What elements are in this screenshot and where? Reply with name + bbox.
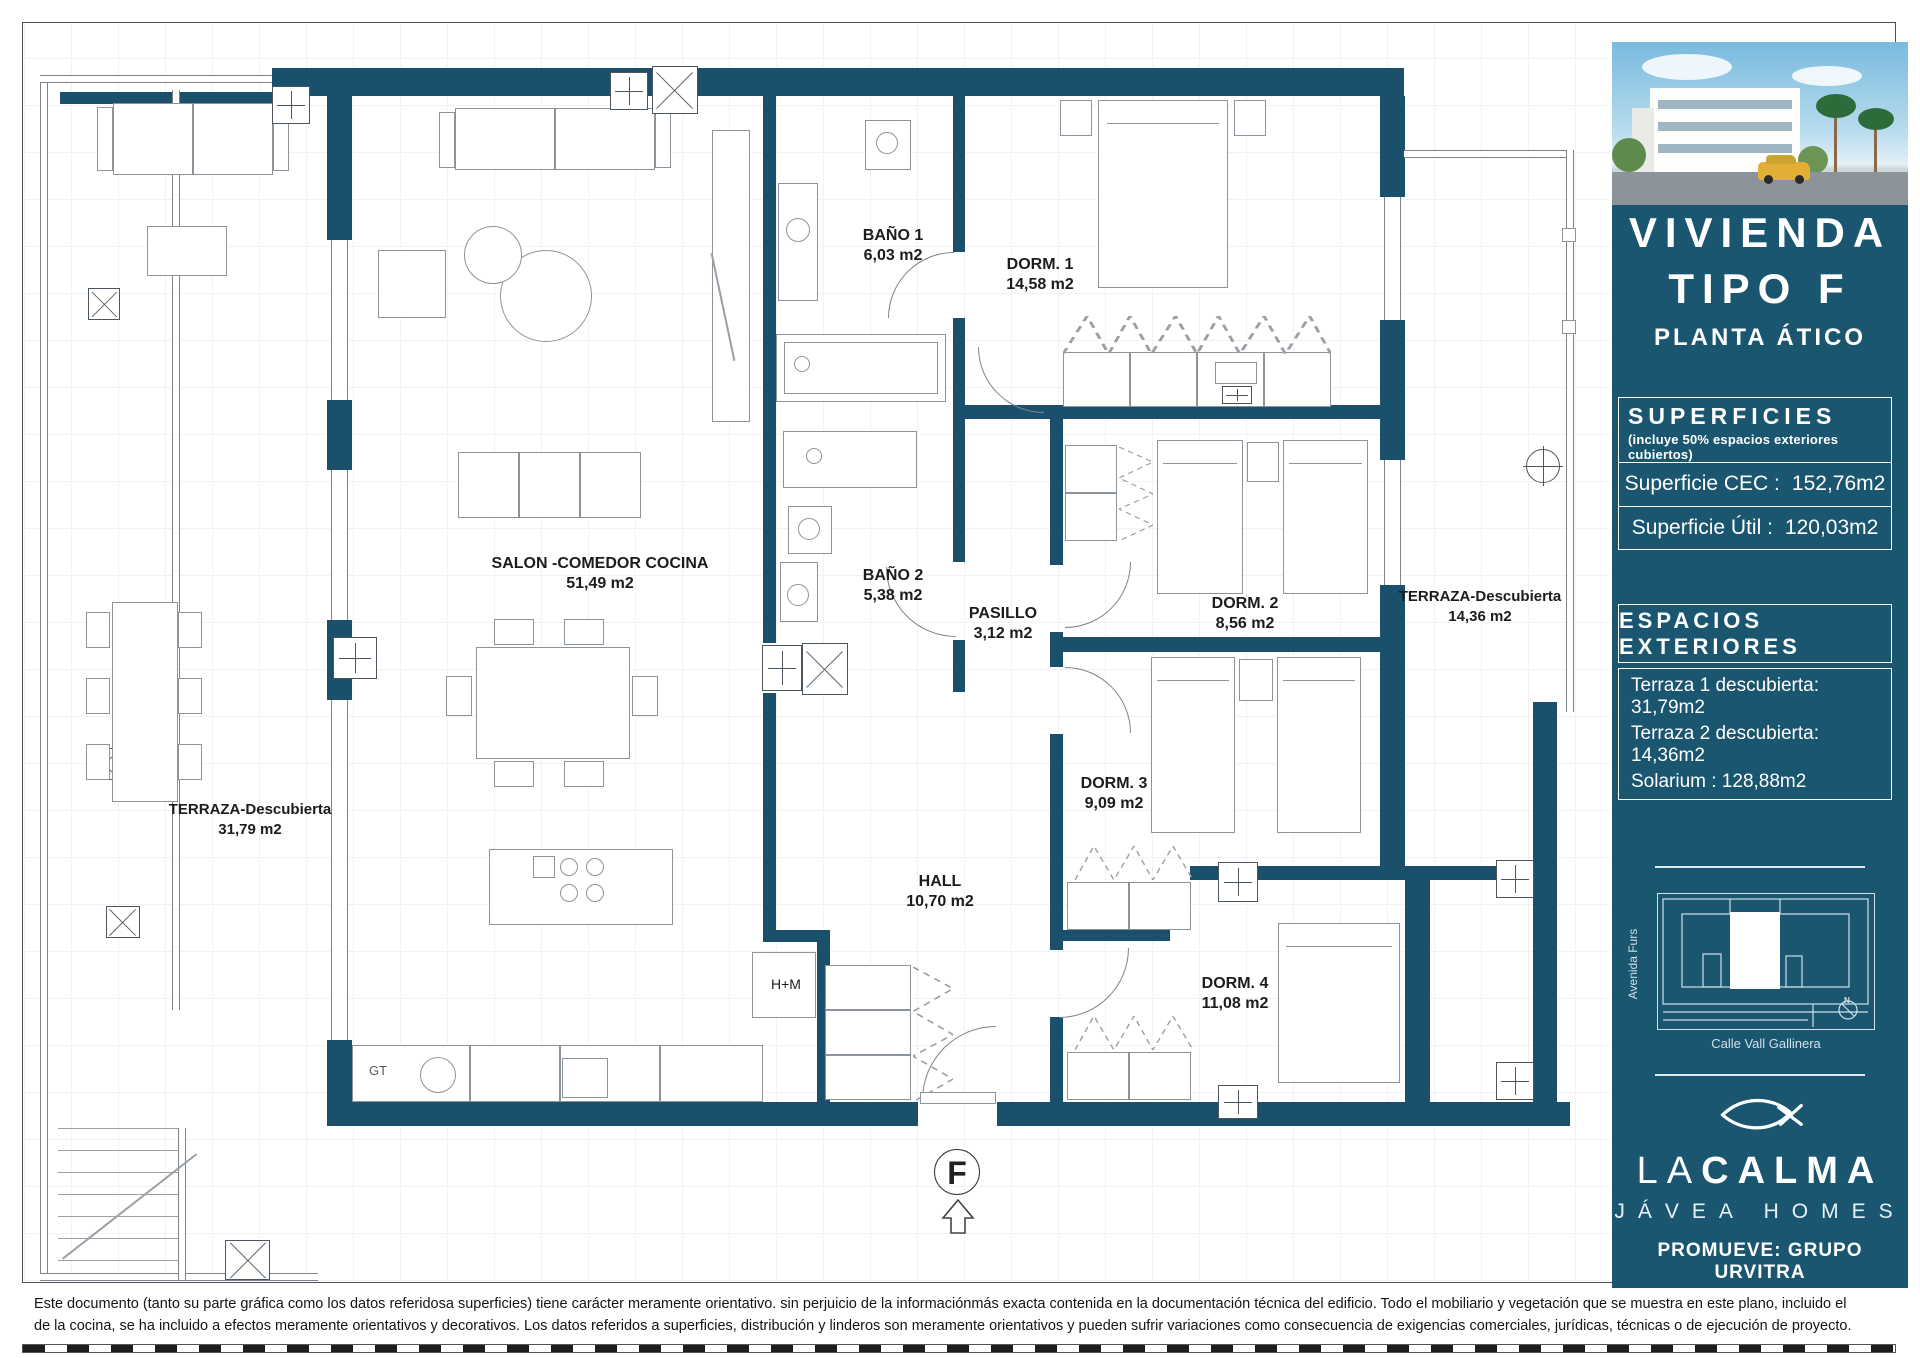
title-line2: TIPO F [1612, 261, 1908, 317]
pillar-marker [333, 637, 377, 679]
sidebar-title: VIVIENDA TIPO F PLANTA ÁTICO [1612, 205, 1908, 353]
pillar-marker [1218, 1085, 1258, 1119]
divider [1655, 1074, 1865, 1076]
car-wheel [1764, 175, 1773, 184]
room-label-pasillo: PASILLO 3,12 m2 [969, 604, 1037, 644]
wardrobe-doors [1119, 447, 1153, 541]
room-name: DORM. 2 [1212, 594, 1279, 614]
room-label-bano1: BAÑO 1 6,03 m2 [863, 226, 923, 266]
room-name: PASILLO [969, 604, 1037, 624]
promoter-line: PROMUEVE: GRUPO URVITRA [1612, 1240, 1908, 1284]
wardrobe [1129, 1052, 1191, 1100]
espacios-item-terraza2: Terraza 2 descubierta: 14,36m2 [1631, 723, 1879, 767]
room-label-salon: SALON -COMEDOR COCINA 51,49 m2 [492, 554, 709, 594]
nightstand [1060, 100, 1092, 136]
sofa-armrest [97, 107, 113, 171]
chair [632, 676, 658, 716]
chair [178, 678, 202, 714]
superficie-cec-row: Superficie CEC : 152,76m2 [1619, 463, 1891, 507]
brand-thin: LA [1637, 1150, 1701, 1192]
room-name: HALL [906, 872, 974, 892]
pillar-marker [610, 72, 648, 110]
disclaimer-line2: de la cocina, se ha incluido a efectos m… [34, 1315, 1908, 1337]
kitchen-counter [470, 1045, 560, 1102]
car-wheel [1795, 175, 1804, 184]
superficie-cec-label: Superficie CEC : [1625, 472, 1780, 496]
stairs-rail [178, 1128, 186, 1280]
window-row [1658, 100, 1792, 109]
room-name: TERRAZA-Descubierta [1399, 587, 1562, 607]
room-name: SALON -COMEDOR COCINA [492, 554, 709, 574]
wardrobe-doors [1063, 316, 1331, 354]
wall-segment [327, 1102, 918, 1126]
palm-tree [1816, 94, 1856, 118]
bath-sink-counter [778, 183, 818, 301]
superficie-util-label: Superficie Útil : [1632, 516, 1773, 540]
coffee-table [464, 226, 522, 284]
shaft-vent [802, 643, 848, 695]
cooktop-burner [560, 858, 578, 876]
wall-segment [1380, 320, 1405, 460]
pillar-marker [272, 86, 310, 124]
outdoor-sofa [193, 103, 273, 175]
room-area: 9,09 m2 [1081, 794, 1148, 814]
wall-segment [1380, 585, 1405, 866]
room-label-terraza2: TERRAZA-Descubierta 14,36 m2 [1399, 587, 1562, 627]
window-row [1658, 122, 1792, 131]
armchair [378, 250, 446, 318]
title-subtitle: PLANTA ÁTICO [1612, 323, 1908, 353]
wall-segment [327, 96, 352, 240]
kitchen-sink-round [420, 1057, 456, 1093]
brand-tagline: JÁVEA HOMES [1612, 1200, 1908, 1224]
chair [86, 678, 110, 714]
chair [564, 619, 604, 645]
dining-table [112, 602, 178, 802]
shaft-vent [652, 66, 698, 114]
sofa [455, 108, 555, 170]
room-label-terraza1: TERRAZA-Descubierta 31,79 m2 [169, 800, 332, 840]
wardrobe [1067, 882, 1129, 930]
pillar-marker [762, 645, 802, 691]
disclaimer: Este documento (tanto su parte gráfica c… [34, 1293, 1908, 1337]
cooktop-burner [586, 858, 604, 876]
cooktop-burner [560, 884, 578, 902]
room-label-dorm3: DORM. 3 9,09 m2 [1081, 774, 1148, 814]
wardrobe [1129, 882, 1191, 930]
terrace-parapet [1404, 150, 1574, 158]
chair [178, 612, 202, 648]
kitchen-island [489, 849, 673, 925]
wall-segment [1050, 734, 1063, 950]
chair [86, 612, 110, 648]
superficie-cec-value: 152,76m2 [1792, 472, 1885, 496]
sofa-armrest [655, 112, 671, 168]
terrace-parapet [40, 75, 48, 1281]
room-area: 6,03 m2 [863, 246, 923, 266]
wall-segment [953, 640, 965, 692]
bed [1098, 100, 1228, 288]
wall-segment [1380, 96, 1405, 197]
nightstand [1239, 659, 1273, 701]
room-label-bano2: BAÑO 2 5,38 m2 [863, 566, 923, 606]
brand-name: LACALMA [1612, 1150, 1908, 1193]
divider [1655, 866, 1865, 868]
unit-letter-marker: F [934, 1149, 980, 1195]
toilet-bowl [798, 518, 820, 540]
nightstand [1234, 100, 1266, 136]
terrace-parapet [40, 75, 272, 83]
wall-segment [1533, 702, 1557, 1126]
room-area: 31,79 m2 [169, 820, 332, 840]
outdoor-table [147, 226, 227, 276]
window [331, 700, 348, 1040]
sink-basin [786, 218, 810, 242]
parapet-tick [1562, 228, 1576, 242]
laundry-label: H+M [771, 976, 801, 992]
wardrobe-doors [1075, 1016, 1193, 1050]
room-area: 14,58 m2 [1006, 275, 1074, 295]
wardrobe-doors [1075, 846, 1193, 880]
wardrobe [1264, 352, 1331, 407]
stairs [58, 1128, 178, 1280]
wall-segment [272, 68, 1404, 96]
superficie-util-value: 120,03m2 [1785, 516, 1878, 540]
espacios-header: ESPACIOS EXTERIORES [1618, 604, 1892, 663]
bed [1151, 657, 1235, 833]
title-line1: VIVIENDA [1612, 205, 1908, 261]
stairs-hatch [225, 1240, 270, 1280]
room-area: 11,08 m2 [1202, 994, 1269, 1014]
site-map-drawing [1658, 894, 1873, 1028]
site-map [1657, 893, 1875, 1030]
wall-segment [1050, 419, 1063, 565]
window-row [1658, 144, 1792, 153]
room-area: 5,38 m2 [863, 586, 923, 606]
espacios-item-solarium: Solarium : 128,88m2 [1631, 771, 1879, 793]
kitchen-counter [660, 1045, 763, 1102]
palm-tree [1858, 108, 1894, 130]
tv-sideboard [580, 452, 641, 518]
chair [564, 761, 604, 787]
chair [494, 761, 534, 787]
wardrobe [1065, 445, 1117, 493]
island-sink [533, 856, 555, 878]
bathtub-drain [794, 356, 810, 372]
wall-segment [763, 96, 776, 643]
wall-segment [327, 400, 352, 470]
superficies-header: SUPERFICIES (incluye 50% espacios exteri… [1619, 398, 1891, 463]
sink-basin [787, 584, 809, 606]
room-area: 8,56 m2 [1212, 614, 1279, 634]
chair [494, 619, 534, 645]
superficie-util-row: Superficie Útil : 120,03m2 [1619, 507, 1891, 550]
room-name: TERRAZA-Descubierta [169, 800, 332, 820]
cooktop-burner [586, 884, 604, 902]
cloud [1792, 66, 1862, 86]
room-label-dorm1: DORM. 1 14,58 m2 [1006, 255, 1074, 295]
window [331, 470, 348, 620]
page: SALON -COMEDOR COCINA 51,49 m2 BAÑO 1 6,… [0, 0, 1920, 1358]
cloud [1642, 54, 1732, 80]
info-sidebar: VIVIENDA TIPO F PLANTA ÁTICO SUPERFICIES… [1612, 42, 1908, 1288]
north-label: N [1844, 996, 1850, 1005]
tv-sideboard [519, 452, 580, 518]
yellow-car [1758, 162, 1810, 180]
espacios-item-terraza1: Terraza 1 descubierta: 31,79m2 [1631, 675, 1879, 719]
wall-segment [763, 693, 776, 932]
bed [1283, 440, 1368, 594]
hall-closet [825, 1010, 911, 1055]
wall-segment [1050, 637, 1380, 652]
floor-drain [106, 906, 140, 938]
pillar-marker [1496, 860, 1534, 898]
chair [86, 744, 110, 780]
wall-segment [763, 930, 830, 942]
shaft-marker [1222, 386, 1252, 404]
tree [1612, 138, 1646, 172]
parapet-tick [1562, 320, 1576, 334]
hall-closet [825, 1055, 911, 1100]
room-name: BAÑO 1 [863, 226, 923, 246]
north-entry-arrow-icon [940, 1198, 976, 1236]
tv-sideboard [458, 452, 519, 518]
pillar-marker [1218, 862, 1258, 902]
room-area: 14,36 m2 [1399, 607, 1562, 627]
fish-logo-icon [1715, 1088, 1805, 1140]
wall-segment [953, 96, 965, 252]
room-name: DORM. 4 [1202, 974, 1269, 994]
superficies-box: SUPERFICIES (incluye 50% espacios exteri… [1618, 397, 1892, 550]
chair [446, 676, 472, 716]
kitchen-sink [562, 1058, 608, 1098]
nightstand [1247, 442, 1279, 482]
room-area: 10,70 m2 [906, 892, 974, 912]
room-name: DORM. 1 [1006, 255, 1074, 275]
shower-drain [806, 448, 822, 464]
wall-segment [997, 1102, 1570, 1126]
hall-closet [825, 965, 911, 1010]
superficies-note: (incluye 50% espacios exteriores cubiert… [1628, 432, 1882, 462]
entrance-door-leaf [920, 1092, 996, 1104]
brand-bold: CALMA [1701, 1150, 1883, 1192]
window [1384, 460, 1401, 585]
room-area: 51,49 m2 [492, 574, 709, 594]
floor-drain [88, 288, 120, 320]
wall-segment [327, 1040, 352, 1104]
room-label-hall: HALL 10,70 m2 [906, 872, 974, 912]
palm-trunk [1874, 126, 1877, 174]
disclaimer-line1: Este documento (tanto su parte gráfica c… [34, 1293, 1908, 1315]
kitchen-unit-label: GT [369, 1063, 387, 1078]
wall-segment [1050, 1017, 1063, 1104]
wardrobe [1065, 493, 1117, 541]
street-left-label: Avenida Furs [1626, 898, 1640, 1030]
shelf-unit [712, 130, 750, 422]
shower-tray [783, 431, 917, 488]
window [1384, 197, 1401, 320]
wall-segment [1063, 930, 1170, 941]
bed [1278, 923, 1400, 1083]
chair [178, 744, 202, 780]
sofa [555, 108, 655, 170]
wall-segment [953, 318, 965, 562]
room-area: 3,12 m2 [969, 624, 1037, 644]
wardrobe [1130, 352, 1197, 407]
room-label-dorm4: DORM. 4 11,08 m2 [1202, 974, 1269, 1014]
dining-table [476, 647, 630, 759]
wardrobe [1063, 352, 1130, 407]
toilet-bowl [876, 132, 898, 154]
pillar-marker [1496, 1062, 1534, 1100]
room-name: BAÑO 2 [863, 566, 923, 586]
scale-bar [22, 1344, 1896, 1353]
wardrobe [1067, 1052, 1129, 1100]
superficies-title: SUPERFICIES [1628, 403, 1882, 430]
bed [1157, 440, 1243, 594]
window [331, 240, 348, 400]
palm-trunk [1834, 112, 1837, 174]
survey-marker [1526, 449, 1560, 483]
outdoor-sofa [113, 103, 193, 175]
room-label-dorm2: DORM. 2 8,56 m2 [1212, 594, 1279, 634]
street-bottom-label: Calle Vall Gallinera [1657, 1036, 1875, 1051]
building-photo [1612, 42, 1908, 205]
wall-segment [1405, 880, 1430, 1104]
sofa-armrest [439, 112, 455, 168]
safe-box [1215, 362, 1257, 384]
room-name: DORM. 3 [1081, 774, 1148, 794]
bed [1277, 657, 1361, 833]
espacios-box: Terraza 1 descubierta: 31,79m2 Terraza 2… [1618, 668, 1892, 800]
